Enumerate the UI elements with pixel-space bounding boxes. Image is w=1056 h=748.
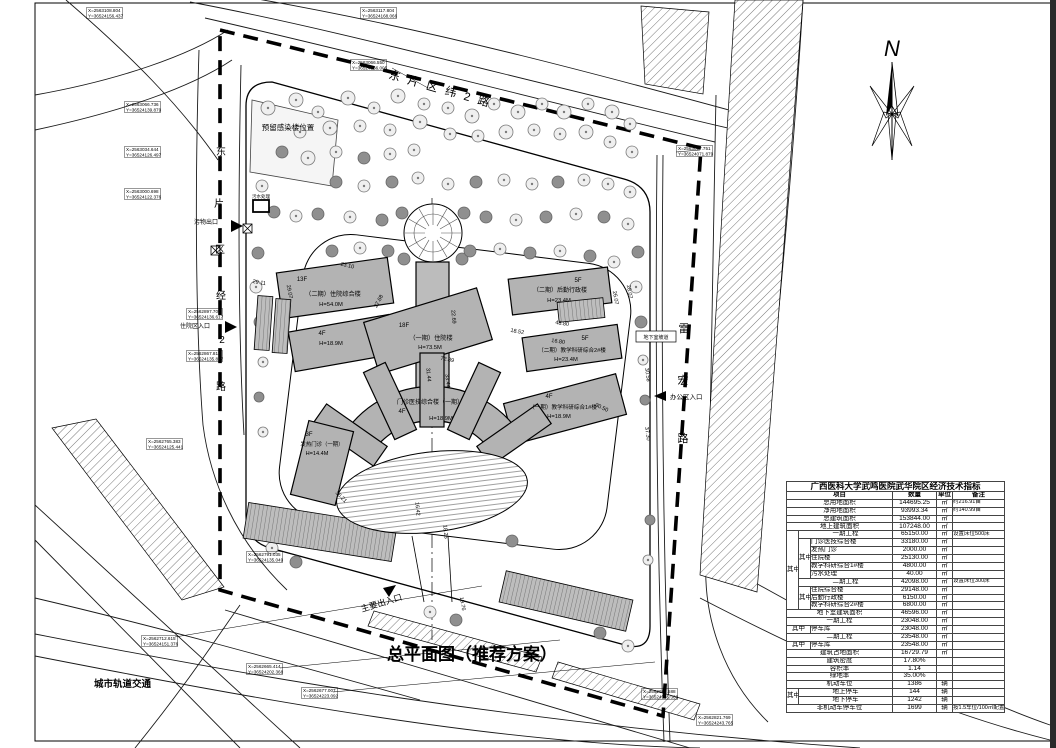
tree-center-dot (295, 215, 297, 217)
tree-symbol (540, 211, 552, 223)
tree-symbol (584, 250, 596, 262)
tree-symbol (290, 556, 302, 568)
road-label-left-char: 区 (215, 244, 225, 256)
table-cell: 40.00 (893, 570, 937, 578)
table-cell (953, 665, 1005, 673)
coordinate-x: X=2563034.644 (126, 147, 159, 152)
coordinate-x: X=2563017.751 (678, 146, 711, 151)
coordinate-callout: X=2562683.588Y=36524185.368 (642, 689, 679, 700)
building-label-name: （二期）后勤行政楼 (533, 286, 587, 294)
tree-symbol (276, 146, 288, 158)
road-label-left-char: 2 (219, 335, 225, 346)
table-cell: 门诊医技综合楼 (811, 539, 893, 547)
table-cell (937, 657, 953, 665)
table-row: 其中门诊医技综合楼33180.00㎡ (787, 539, 1005, 547)
parking-lot (254, 296, 273, 351)
table-cell: 23548.00 (893, 641, 937, 649)
reserved-parcel-label: 预留感染楼位置 (262, 122, 315, 132)
tree-symbol (480, 211, 492, 223)
waste-exit-label: 污物出口 (194, 218, 218, 226)
coordinate-y: Y=36524156.437 (88, 14, 124, 19)
building-label-name: （一期）住院楼 (409, 334, 452, 342)
table-cell (937, 673, 953, 681)
table-cell: ㎡ (937, 626, 953, 634)
building-label-height: H=18.9M (547, 414, 571, 420)
building-label-height: H=23.4M (554, 357, 578, 363)
table-cell: ㎡ (937, 547, 953, 555)
table-cell: 备注 (953, 491, 1005, 499)
tree-center-dot (627, 645, 629, 647)
table-cell: ㎡ (937, 594, 953, 602)
table-row: 建筑占地面积16729.79㎡ (787, 649, 1005, 657)
table-cell (953, 555, 1005, 563)
inpatient-entrance-arrow (225, 321, 237, 333)
table-cell: ㎡ (937, 515, 953, 523)
tree-symbol (632, 246, 644, 258)
tree-center-dot (413, 149, 415, 151)
table-cell: 地上建筑面积 (787, 523, 893, 531)
survey-marker (243, 224, 252, 233)
coordinate-y: Y=36524223.092 (303, 694, 339, 699)
tree-symbol (598, 211, 610, 223)
coordinate-callout: X=2563066.550Y=36524166.005 (351, 60, 388, 71)
tree-center-dot (629, 191, 631, 193)
tree-center-dot (307, 157, 309, 159)
dimension-label: 18.26 (441, 525, 448, 539)
coordinate-y: Y=36524136.617 (188, 315, 224, 320)
table-row: 绿地率35.00% (787, 673, 1005, 681)
building-label-height: H=18.9M (429, 416, 453, 422)
table-cell: 建筑密度 (787, 657, 893, 665)
coordinate-y: Y=36524071.879 (678, 152, 714, 157)
table-cell (953, 602, 1005, 610)
table-cell: 4800.00 (893, 562, 937, 570)
table-cell: 数量 (893, 491, 937, 499)
table-row: 发热门诊2000.00㎡ (787, 547, 1005, 555)
table-cell: 6800.00 (893, 602, 937, 610)
tree-center-dot (447, 183, 449, 185)
building-label-height: H=73.5M (418, 345, 442, 351)
table-cell (953, 657, 1005, 665)
table-cell: 其中 (799, 586, 811, 610)
tree-center-dot (629, 123, 631, 125)
coordinate-x: X=2562712.615 (143, 636, 176, 641)
tree-center-dot (271, 547, 273, 549)
north-letter: N (884, 36, 900, 61)
table-cell (953, 515, 1005, 523)
table-cell (953, 562, 1005, 570)
road-label-right-char: 雷 (679, 322, 690, 335)
table-cell: 住院楼 (811, 555, 893, 563)
coordinate-x: X=2563108.804 (88, 8, 121, 13)
waste-exit-arrow (231, 220, 243, 232)
table-cell: ㎡ (937, 562, 953, 570)
coordinate-callout: X=2563017.751Y=36524071.879 (677, 146, 714, 157)
building-label-floors: 4F (545, 394, 552, 400)
table-row: 污水处理40.00㎡ (787, 570, 1005, 578)
coordinate-y: Y=36524122.376 (126, 195, 162, 200)
table-cell: ㎡ (937, 531, 953, 539)
building-label-name: （二期）教学科研综合2#楼 (538, 346, 606, 354)
table-cell: 其中 (787, 641, 811, 649)
building-label-height: H=23.4M (547, 298, 571, 304)
table-cell: 停车库 (811, 626, 893, 634)
table-row: 地下室建筑面积46596.00㎡ (787, 610, 1005, 618)
table-cell: 污水处理 (811, 570, 893, 578)
coordinate-x: X=2563066.550 (352, 60, 385, 65)
tree-center-dot (255, 286, 257, 288)
table-cell: 33180.00 (893, 539, 937, 547)
tree-center-dot (515, 219, 517, 221)
inpatient-entrance-label: 住院区入口 (180, 322, 210, 330)
table-cell: 设置床位300床 (953, 578, 1005, 586)
coordinate-y: Y=36524202.368 (248, 670, 284, 675)
table-row: 教学科研综合2#楼6800.00㎡ (787, 602, 1005, 610)
coordinate-callout: X=2562791.035Y=36524135.049 (247, 552, 284, 563)
tree-center-dot (607, 183, 609, 185)
tree-center-dot (613, 261, 615, 263)
table-cell: 6150.00 (893, 594, 937, 602)
coordinate-callout: X=2563117.804Y=36524168.066 (361, 8, 398, 19)
table-row: 总用地面积144695.25㎡约216.91亩 (787, 499, 1005, 507)
table-cell (953, 523, 1005, 531)
table-cell: ㎡ (937, 586, 953, 594)
tree-center-dot (471, 115, 473, 117)
table-cell (953, 594, 1005, 602)
circular-garden (404, 204, 462, 262)
hatch-area (641, 6, 709, 94)
table-cell (953, 586, 1005, 594)
road-line (662, 155, 670, 742)
building-label-height: H=54.0M (319, 302, 343, 308)
road-label-right-char: 路 (678, 432, 689, 445)
tree-center-dot (575, 213, 577, 215)
tree-center-dot (585, 131, 587, 133)
tree-symbol (470, 176, 482, 188)
table-cell (953, 697, 1005, 705)
tree-center-dot (627, 223, 629, 225)
table-row: 其中住院综合楼29148.00㎡ (787, 586, 1005, 594)
table-cell: 辆 (937, 704, 953, 712)
table-row: 容积率1.14 (787, 665, 1005, 673)
table-cell: 其中 (799, 539, 811, 578)
table-row: 其中停车库23048.00㎡ (787, 626, 1005, 634)
table-row: 一期工程23048.00㎡ (787, 618, 1005, 626)
tree-symbol (645, 515, 655, 525)
table-cell: ㎡ (937, 523, 953, 531)
table-title-row: 广西医科大学武鸣医院武华院区经济技术指标 (787, 482, 1005, 492)
sewage-plant-symbol (253, 200, 269, 212)
building-label-floors: 5F (574, 278, 581, 284)
table-cell: 容积率 (787, 665, 893, 673)
building-label-floors: 13F (297, 277, 308, 283)
table-cell (953, 618, 1005, 626)
coordinate-y: Y=36524135.049 (248, 558, 284, 563)
table-cell: 144695.25 (893, 499, 937, 507)
tree-center-dot (295, 99, 297, 101)
building-label-height: H=14.4M (306, 451, 329, 457)
table-cell: 23548.00 (893, 633, 937, 641)
ramp-label: 地下室坡道 (643, 334, 668, 341)
coordinate-y: Y=36524151.376 (143, 642, 179, 647)
road-label-metro: 城市轨道交通 (94, 678, 152, 690)
table-cell: 教学科研综合2#楼 (811, 602, 893, 610)
tree-symbol (386, 176, 398, 188)
coordinate-x: X=2562683.588 (643, 689, 676, 694)
tree-center-dot (499, 248, 501, 250)
indicators-table: 广西医科大学武鸣医院武华院区经济技术指标项目数量单位备注总用地面积144695.… (786, 481, 1005, 713)
building-label-height: H=18.9M (319, 341, 343, 347)
table-cell: 153844.00 (893, 515, 937, 523)
table-cell: ㎡ (937, 641, 953, 649)
tree-center-dot (397, 95, 399, 97)
table-row: 二期工程42098.00㎡设置床位300床 (787, 578, 1005, 586)
tree-symbol (552, 176, 564, 188)
tree-center-dot (267, 107, 269, 109)
coordinate-x: X=2562821.769 (698, 715, 731, 720)
building-label-name: 发热门诊（一期） (300, 440, 343, 448)
table-cell: 辆 (937, 697, 953, 705)
coordinate-callout: X=2562867.812Y=36524135.817 (187, 351, 224, 362)
tree-symbol (252, 247, 264, 259)
tree-center-dot (642, 359, 644, 361)
table-cell: 25130.00 (893, 555, 937, 563)
coordinate-x: X=2562765.383 (148, 439, 181, 444)
table-cell: 住院综合楼 (811, 586, 893, 594)
table-cell: 16729.79 (893, 649, 937, 657)
building-label-name: （二期）住院综合楼 (305, 290, 361, 298)
table-row: 非机动车停车位1699辆按1.5车位/100㎡配置 (787, 704, 1005, 712)
office-entrance-label: 办公区入口 (670, 392, 703, 401)
tree-center-dot (262, 361, 264, 363)
coordinate-callout: X=2563108.804Y=36524156.437 (87, 8, 124, 19)
tree-center-dot (359, 125, 361, 127)
sewage-label: 污水处理 (252, 193, 270, 200)
table-cell (953, 681, 1005, 689)
economic-indicators-table: 广西医科大学武鸣医院武华院区经济技术指标项目数量单位备注总用地面积144695.… (786, 481, 1004, 713)
tree-center-dot (335, 151, 337, 153)
tree-symbol (640, 395, 650, 405)
table-row: 其中停车库23548.00㎡ (787, 641, 1005, 649)
coordinate-y: Y=36524126.497 (126, 153, 162, 158)
table-cell (953, 649, 1005, 657)
building-label-name: 门诊医技综合楼（一期） (397, 398, 463, 406)
table-cell: 65150.00 (893, 531, 937, 539)
table-cell: 地上停车 (799, 689, 893, 697)
road-line (239, 65, 244, 435)
coordinate-x: X=2562677.007 (303, 688, 336, 693)
building-label-floors: 3F (305, 432, 312, 438)
coordinate-y: Y=36524243.765 (698, 721, 734, 726)
coordinate-x: X=2562867.812 (188, 351, 221, 356)
table-cell: 17.80% (893, 657, 937, 665)
table-cell: 绿地率 (787, 673, 893, 681)
coordinate-callout: X=2562665.414Y=36524202.368 (247, 664, 284, 675)
table-row: 其中一期工程65150.00㎡设置床位500床 (787, 531, 1005, 539)
table-cell: 后勤行政楼 (811, 594, 893, 602)
table-header-row: 项目数量单位备注 (787, 491, 1005, 499)
dimension-label: 16.42 (413, 502, 420, 516)
table-row: 总建筑面积153844.00㎡ (787, 515, 1005, 523)
building-label-floors: 18F (399, 323, 410, 329)
road-line (35, 60, 232, 130)
road-label-left-char: 片 (214, 197, 224, 210)
tree-center-dot (505, 131, 507, 133)
table-cell (953, 547, 1005, 555)
coordinate-x: X=2563000.698 (126, 189, 159, 194)
table-cell: 建筑占地面积 (787, 649, 893, 657)
table-cell (953, 570, 1005, 578)
table-cell: 按1.5车位/100㎡配置 (953, 704, 1005, 712)
coordinate-callout: X=2562765.383Y=36524125.441 (147, 439, 184, 450)
table-cell: 2000.00 (893, 547, 937, 555)
road-line (35, 656, 700, 748)
table-cell: 净用地面积 (787, 507, 893, 515)
tree-center-dot (447, 107, 449, 109)
tree-center-dot (533, 129, 535, 131)
table-cell: 其中 (787, 626, 811, 634)
coordinate-callout: X=2563000.698Y=36524122.376 (125, 189, 162, 200)
site-plan-canvas: N 东片区纬2路 城市轨道交通 总平面图（推荐方案） 预留感染楼位置 污水处理 … (0, 0, 1056, 748)
tree-center-dot (635, 286, 637, 288)
plan-title: 总平面图（推荐方案） (387, 644, 557, 664)
table-cell: ㎡ (937, 499, 953, 507)
tree-center-dot (363, 185, 365, 187)
table-cell: ㎡ (937, 578, 953, 586)
main-entrance-label: 主要出入口 (360, 592, 404, 614)
tree-center-dot (631, 151, 633, 153)
table-cell: 项目 (787, 491, 893, 499)
table-cell: ㎡ (937, 539, 953, 547)
tree-center-dot (349, 216, 351, 218)
tree-center-dot (531, 183, 533, 185)
tree-center-dot (423, 103, 425, 105)
building-label-name: （一期）教学科研综合1#楼 (529, 403, 597, 411)
table-cell: 1.14 (893, 665, 937, 673)
building-label-floors: 5F (581, 336, 588, 342)
tree-center-dot (517, 111, 519, 113)
road-label-right-char: 宏 (678, 373, 689, 387)
table-cell: 约140.99亩 (953, 507, 1005, 515)
north-arrow-icon: N (870, 36, 914, 160)
tree-center-dot (611, 111, 613, 113)
road-label-left-char: 经 (216, 289, 226, 302)
table-cell: 107248.00 (893, 523, 937, 531)
table-cell: ㎡ (937, 649, 953, 657)
tree-symbol (382, 245, 394, 257)
table-cell (953, 539, 1005, 547)
tree-center-dot (389, 129, 391, 131)
table-cell: 1242 (893, 697, 937, 705)
tree-symbol (398, 253, 410, 265)
table-cell: 辆 (937, 681, 953, 689)
table-cell: 一期工程 (799, 531, 893, 539)
tree-center-dot (541, 103, 543, 105)
table-row: 地下停车1242辆 (787, 697, 1005, 705)
table-cell: 机动车位 (787, 681, 893, 689)
tree-symbol (635, 316, 647, 328)
tree-center-dot (429, 611, 431, 613)
tree-center-dot (373, 107, 375, 109)
tree-center-dot (503, 179, 505, 181)
table-row: 机动车位1386辆 (787, 681, 1005, 689)
table-cell: 地下停车 (799, 697, 893, 705)
coordinate-x: X=2562665.414 (248, 664, 281, 669)
dimension-label: 19.76 (458, 597, 466, 612)
dimension-label: 31.44 (424, 368, 431, 382)
table-cell (937, 665, 953, 673)
dimension-label: 33.44 (443, 374, 450, 388)
table-row: 净用地面积93993.34㎡约140.99亩 (787, 507, 1005, 515)
road-label-left-char: 路 (216, 380, 226, 393)
table-cell: ㎡ (937, 602, 953, 610)
tree-symbol (524, 247, 536, 259)
tree-center-dot (559, 133, 561, 135)
tree-symbol (450, 614, 462, 626)
table-cell (953, 641, 1005, 649)
table-cell: 1699 (893, 704, 937, 712)
tree-center-dot (583, 179, 585, 181)
tree-symbol (358, 152, 370, 164)
table-cell: 单位 (937, 491, 953, 499)
table-cell: 其中 (787, 531, 799, 610)
coordinate-y: Y=36524139.879 (126, 108, 162, 113)
table-row: 其中地上停车144辆 (787, 689, 1005, 697)
coordinate-callout: X=2563034.644Y=36524126.497 (125, 147, 162, 158)
tree-center-dot (477, 135, 479, 137)
tree-center-dot (329, 127, 331, 129)
table-cell: 总建筑面积 (787, 515, 893, 523)
table-cell (953, 689, 1005, 697)
tree-center-dot (347, 97, 349, 99)
table-row: 教学科研综合1#楼4800.00㎡ (787, 562, 1005, 570)
table-cell: 46596.00 (893, 610, 937, 618)
table-cell: 辆 (937, 689, 953, 697)
coordinate-y: Y=36524135.817 (188, 357, 224, 362)
table-cell: ㎡ (937, 507, 953, 515)
table-row: 二期工程23548.00㎡ (787, 633, 1005, 641)
tree-center-dot (419, 121, 421, 123)
coordinate-callout: X=2562821.769Y=36524243.765 (697, 715, 734, 726)
coordinate-callout: X=2562677.007Y=36524223.092 (302, 688, 339, 699)
tree-symbol (396, 207, 408, 219)
road-label-left-char: 东 (216, 145, 226, 158)
coordinate-x: X=2562791.035 (248, 552, 281, 557)
tree-center-dot (449, 133, 451, 135)
tree-center-dot (317, 111, 319, 113)
tree-center-dot (559, 250, 561, 252)
coordinate-y: Y=36524185.368 (643, 695, 679, 700)
table-cell: 35.00% (893, 673, 937, 681)
table-cell: 93993.34 (893, 507, 937, 515)
table-cell: 二期工程 (787, 633, 893, 641)
table-cell: 23048.00 (893, 618, 937, 626)
tree-symbol (464, 245, 476, 257)
table-row: 住院楼25130.00㎡ (787, 555, 1005, 563)
table-cell: 停车库 (811, 641, 893, 649)
tree-symbol (458, 207, 470, 219)
tree-symbol (594, 627, 606, 639)
table-cell: 144 (893, 689, 937, 697)
tree-symbol (330, 176, 342, 188)
tree-center-dot (389, 153, 391, 155)
coordinate-x: X=2563066.736 (126, 102, 159, 107)
table-cell: 设置床位500床 (953, 531, 1005, 539)
coordinate-x: X=2563117.804 (362, 8, 395, 13)
table-row: 地上建筑面积107248.00㎡ (787, 523, 1005, 531)
table-cell: 一期工程 (787, 618, 893, 626)
office-entrance-arrow (654, 391, 666, 401)
